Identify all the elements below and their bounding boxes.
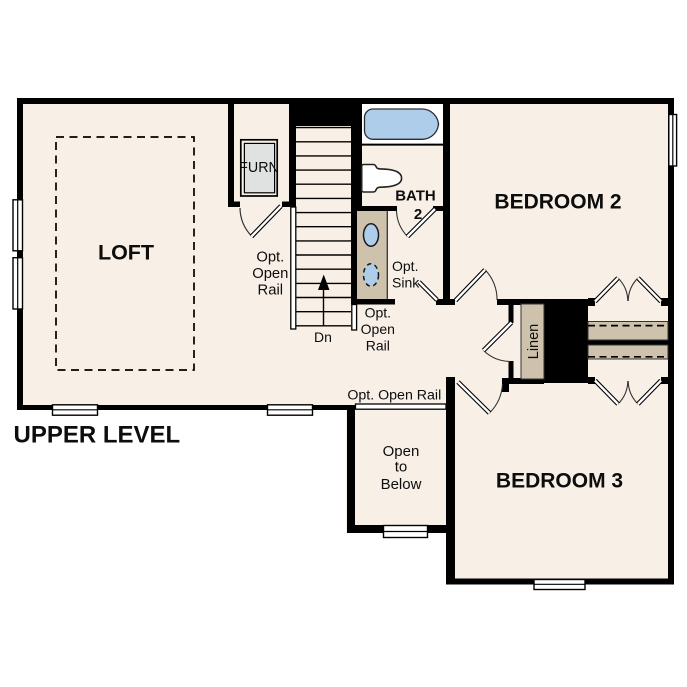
svg-text:FURN: FURN xyxy=(239,160,279,176)
svg-text:Sink: Sink xyxy=(392,275,420,291)
svg-text:Open: Open xyxy=(361,321,395,337)
svg-text:Open: Open xyxy=(383,443,420,460)
svg-text:Open: Open xyxy=(252,266,288,282)
svg-text:Opt.: Opt. xyxy=(365,305,391,321)
svg-text:BATH: BATH xyxy=(395,187,436,204)
svg-text:BEDROOM 3: BEDROOM 3 xyxy=(496,470,623,493)
svg-text:LOFT: LOFT xyxy=(98,241,154,265)
svg-text:Rail: Rail xyxy=(366,338,390,354)
svg-text:to: to xyxy=(395,459,408,476)
svg-text:Rail: Rail xyxy=(258,282,284,298)
svg-text:Opt. Open Rail: Opt. Open Rail xyxy=(347,388,441,404)
svg-text:BEDROOM 2: BEDROOM 2 xyxy=(494,191,621,214)
svg-text:Dn: Dn xyxy=(314,329,332,345)
svg-text:Opt.: Opt. xyxy=(392,258,418,274)
svg-text:2: 2 xyxy=(414,206,422,223)
svg-text:Linen: Linen xyxy=(526,324,542,359)
svg-text:UPPER LEVEL: UPPER LEVEL xyxy=(14,422,181,449)
svg-text:Below: Below xyxy=(381,476,422,493)
svg-text:Opt.: Opt. xyxy=(256,249,284,265)
